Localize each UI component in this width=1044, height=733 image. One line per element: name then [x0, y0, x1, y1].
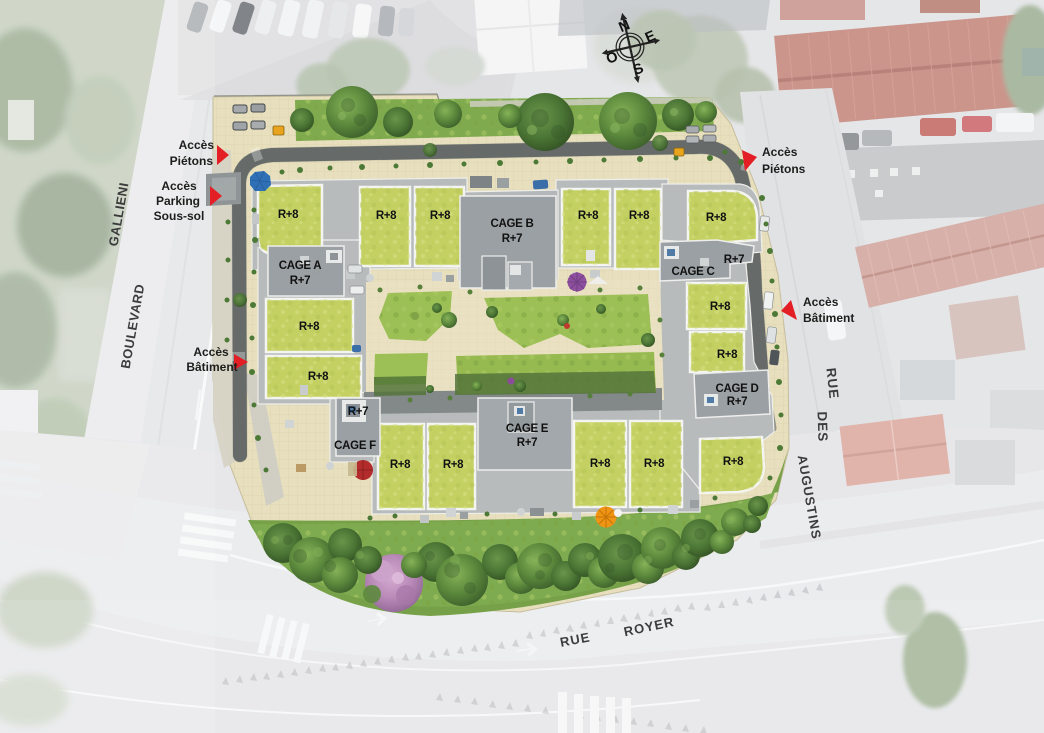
- svg-text:R+8: R+8: [443, 459, 464, 471]
- svg-text:Accès: Accès: [161, 179, 197, 193]
- svg-text:R+7: R+7: [727, 396, 748, 408]
- svg-text:Accès: Accès: [179, 138, 215, 152]
- svg-text:Piétons: Piétons: [762, 162, 806, 176]
- svg-text:CAGE C: CAGE C: [672, 266, 715, 278]
- svg-text:R+8: R+8: [723, 456, 744, 468]
- svg-text:R+8: R+8: [299, 321, 320, 333]
- svg-text:Bâtiment: Bâtiment: [186, 360, 237, 374]
- svg-text:CAGE E: CAGE E: [506, 423, 549, 435]
- svg-text:R+8: R+8: [390, 459, 411, 471]
- svg-text:R+8: R+8: [710, 301, 731, 313]
- svg-text:R+8: R+8: [308, 371, 329, 383]
- svg-text:R+8: R+8: [629, 210, 650, 222]
- svg-text:CAGE A: CAGE A: [279, 260, 322, 272]
- svg-text:R+7: R+7: [348, 406, 369, 418]
- svg-text:CAGE D: CAGE D: [716, 383, 759, 395]
- svg-text:R+8: R+8: [590, 458, 611, 470]
- svg-text:R+8: R+8: [578, 210, 599, 222]
- svg-text:CAGE B: CAGE B: [491, 218, 534, 230]
- svg-text:Piétons: Piétons: [170, 154, 214, 168]
- svg-text:DES: DES: [814, 411, 830, 442]
- svg-text:R+7: R+7: [502, 233, 523, 245]
- svg-text:R+7: R+7: [517, 437, 538, 449]
- svg-text:R+7: R+7: [290, 275, 311, 287]
- svg-text:Accès: Accès: [762, 145, 798, 159]
- svg-text:R+8: R+8: [430, 210, 451, 222]
- svg-text:Accès: Accès: [193, 345, 229, 359]
- svg-text:Bâtiment: Bâtiment: [803, 311, 854, 325]
- svg-text:R+8: R+8: [706, 212, 727, 224]
- svg-text:Sous-sol: Sous-sol: [154, 209, 205, 223]
- svg-text:CAGE F: CAGE F: [334, 440, 376, 452]
- svg-text:Parking: Parking: [156, 194, 200, 208]
- svg-text:R+8: R+8: [644, 458, 665, 470]
- svg-text:R+7: R+7: [724, 254, 745, 266]
- svg-text:R+8: R+8: [376, 210, 397, 222]
- svg-text:Accès: Accès: [803, 295, 839, 309]
- svg-text:R+8: R+8: [717, 349, 738, 361]
